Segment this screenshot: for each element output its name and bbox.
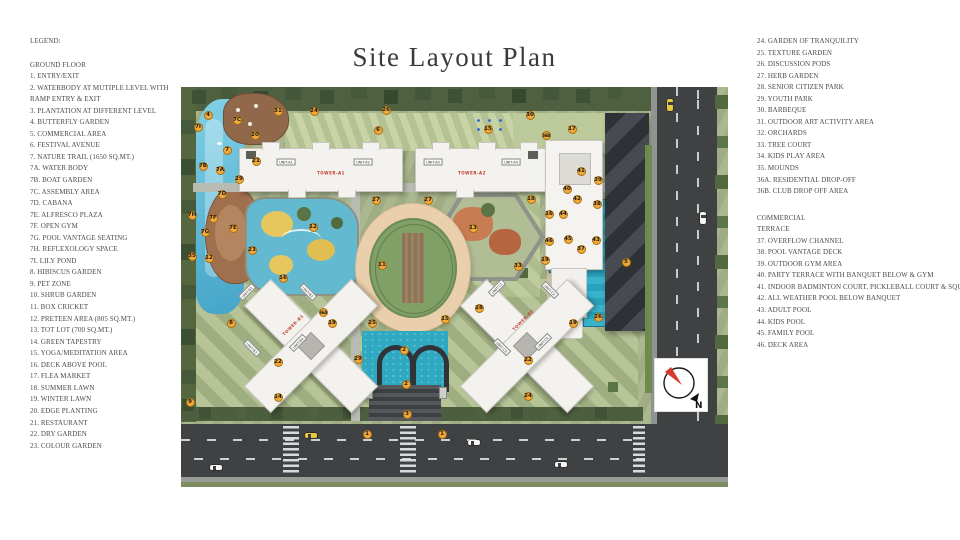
building-wing xyxy=(338,190,356,198)
car xyxy=(305,433,317,438)
legend-item: 27. HERB GARDEN xyxy=(757,71,957,83)
legend-item: 9. PET ZONE xyxy=(30,279,180,291)
legend-item: 5. COMMERCIAL AREA xyxy=(30,129,180,141)
boat-garden-inner xyxy=(215,205,247,261)
legend-item: 7D. CABANA xyxy=(30,198,180,210)
legend-item: 7. NATURE TRAIL (1650 SQ.MT.) xyxy=(30,152,180,164)
legend-item: 29. YOUTH PARK xyxy=(757,94,957,106)
legend-item: 24. GARDEN OF TRANQUILITY xyxy=(757,36,957,48)
plan-marker-7F: 7F xyxy=(209,214,218,223)
legend-right-column: 24. GARDEN OF TRANQUILITY25. TEXTURE GAR… xyxy=(757,36,957,351)
plan-marker-2: 2 xyxy=(400,346,409,355)
legend-item: 43. ADULT POOL xyxy=(757,305,957,317)
legend-item: 17. FLEA MARKET xyxy=(30,371,180,383)
north-label: N xyxy=(695,401,703,411)
car xyxy=(468,440,480,445)
site-layout-page: Site Layout Plan LEGEND: GROUND FLOOR 1.… xyxy=(0,0,960,540)
plan-marker-33: 33 xyxy=(514,262,523,271)
plan-marker-7I: 7I xyxy=(194,123,203,132)
legend-item: 36B. CLUB DROP OFF AREA xyxy=(757,186,957,198)
plan-marker-35: 35 xyxy=(188,252,197,261)
car xyxy=(210,465,222,470)
legend-item: 44. KIDS POOL xyxy=(757,317,957,329)
car xyxy=(667,99,673,111)
plan-marker-18: 18 xyxy=(527,195,536,204)
plan-marker-24: 24 xyxy=(310,107,319,116)
plan-marker-1: 1 xyxy=(438,430,447,439)
north-arrow-graphic: N xyxy=(655,359,707,411)
building-wing xyxy=(362,142,380,150)
legend-item: 28. SENIOR CITIZEN PARK xyxy=(757,82,957,94)
building-wing xyxy=(312,142,330,150)
plan-marker-9: 9 xyxy=(186,398,195,407)
tower-label: TOWER-A1 xyxy=(317,171,345,176)
legend-item: 40. PARTY TERRACE WITH BANQUET BELOW & G… xyxy=(757,270,957,282)
plan-marker-7G: 7G xyxy=(201,228,210,237)
legend-item: 8. HIBISCUS GARDEN xyxy=(30,267,180,279)
legend-item: 32. ORCHARDS xyxy=(757,128,957,140)
building-wing xyxy=(288,190,306,198)
legend-item: 6. FESTIVAL AVENUE xyxy=(30,140,180,152)
legend-item: 22. DRY GARDEN xyxy=(30,429,180,441)
crosswalk xyxy=(283,426,299,475)
plan-marker-7: 7 xyxy=(223,146,232,155)
plan-marker-28: 28 xyxy=(475,304,484,313)
unit-label: UNIT-A4 xyxy=(502,159,521,166)
water-slide-curve xyxy=(281,229,321,249)
plan-marker-22: 22 xyxy=(524,356,533,365)
plan-marker-36A: 36A xyxy=(319,308,328,317)
legend-item: 7E. ALFRESCO PLAZA xyxy=(30,210,180,222)
tree-icon xyxy=(481,203,495,217)
legend-item: 46. DECK AREA xyxy=(757,340,957,352)
plan-marker-30: 30 xyxy=(526,111,535,120)
legend-item: 33. TREE COURT xyxy=(757,140,957,152)
unit-label: UNIT-A2 xyxy=(354,159,373,166)
plan-marker-3: 3 xyxy=(403,410,412,419)
planting-strip-south xyxy=(181,482,728,487)
plan-marker-46: 46 xyxy=(545,237,554,246)
boat-icon xyxy=(217,142,222,145)
legend-item: 7I. LILY POND xyxy=(30,256,180,268)
plan-marker-22: 22 xyxy=(274,358,283,367)
legend-item: 41. INDOOR BADMINTON COURT, PICKLEBALL C… xyxy=(757,282,957,294)
legend-item: 7H. REFLEXOLOGY SPACE xyxy=(30,244,180,256)
building-wing xyxy=(478,142,496,150)
unit-label: UNIT-A3 xyxy=(424,159,443,166)
unit-label: UNIT-A1 xyxy=(277,159,296,166)
plan-marker-7B: 7B xyxy=(199,162,208,171)
legend-item: 37. OVERFLOW CHANNEL xyxy=(757,236,957,248)
legend-item: 26. DISCUSSION PODS xyxy=(757,59,957,71)
plan-marker-7A: 7A xyxy=(216,166,225,175)
green-verge xyxy=(645,145,652,393)
legend-item: 1. ENTRY/EXIT xyxy=(30,71,180,83)
legend-item: 19. WINTER LAWN xyxy=(30,394,180,406)
site-plan-image: N UNIT-A1UNIT-A2UNIT-A3UNIT-A4UNIT-B1UNI… xyxy=(181,87,728,487)
building-wing xyxy=(456,190,474,198)
commercial-building xyxy=(605,113,649,331)
legend-item: 10. SHRUB GARDEN xyxy=(30,290,180,302)
play-equipment xyxy=(489,229,521,255)
roof-detail xyxy=(528,151,538,159)
plan-marker-26: 26 xyxy=(382,106,391,115)
car xyxy=(555,462,567,467)
plan-marker-41: 41 xyxy=(577,167,586,176)
plan-marker-4: 4 xyxy=(204,111,213,120)
plan-marker-17: 17 xyxy=(568,125,577,134)
legend-item: 42. ALL WEATHER POOL BELOW BANQUET xyxy=(757,293,957,305)
plan-marker-45: 45 xyxy=(564,235,573,244)
legend-item: 21. RESTAURANT xyxy=(30,418,180,430)
plan-marker-16: 16 xyxy=(545,210,554,219)
legend-item: 23. COLOUR GARDEN xyxy=(30,441,180,453)
legend-right-items-bottom: 37. OVERFLOW CHANNEL38. POOL VANTAGE DEC… xyxy=(757,236,957,351)
plan-marker-16: 16 xyxy=(279,274,288,283)
plan-marker-20: 20 xyxy=(251,131,260,140)
spacer xyxy=(30,48,180,60)
plan-marker-6: 6 xyxy=(374,126,383,135)
legend-item: 4. BUTTERFLY GARDEN xyxy=(30,117,180,129)
legend-item: 38. POOL VANTAGE DECK xyxy=(757,247,957,259)
legend-item: 39. OUTDOOR GYM AREA xyxy=(757,259,957,271)
gate-post xyxy=(439,387,447,399)
road-south xyxy=(181,424,728,477)
plan-marker-19: 19 xyxy=(569,319,578,328)
legend-right-items-top: 24. GARDEN OF TRANQUILITY25. TEXTURE GAR… xyxy=(757,36,957,198)
plan-marker-24: 24 xyxy=(524,392,533,401)
building-wing xyxy=(432,142,450,150)
plan-marker-26: 26 xyxy=(594,313,603,322)
plan-marker-27: 27 xyxy=(372,196,381,205)
plan-marker-31: 31 xyxy=(274,107,283,116)
plan-marker-21: 21 xyxy=(252,157,261,166)
plan-marker-11: 11 xyxy=(378,261,387,270)
plan-marker-12: 12 xyxy=(205,254,214,263)
plan-marker-7C: 7C xyxy=(233,116,242,125)
legend-heading: LEGEND: xyxy=(30,36,180,48)
plan-marker-15: 15 xyxy=(484,125,493,134)
legend-item: 25. TEXTURE GARDEN xyxy=(757,48,957,60)
legend-left-column: LEGEND: GROUND FLOOR 1. ENTRY/EXIT2. WAT… xyxy=(30,36,180,452)
legend-item: 7G. POOL VANTAGE SEATING xyxy=(30,233,180,245)
plan-marker-27: 27 xyxy=(424,196,433,205)
legend-item: 7A. WATER BODY xyxy=(30,163,180,175)
legend-item: 34. KIDS PLAY AREA xyxy=(757,151,957,163)
legend-section-commercial-terrace: COMMERCIALTERRACE xyxy=(757,213,957,236)
plan-marker-7D: 7D xyxy=(218,190,227,199)
spacer xyxy=(757,198,957,213)
plan-marker-38: 38 xyxy=(593,200,602,209)
legend-section-line: TERRACE xyxy=(757,224,957,236)
crosswalk xyxy=(400,426,416,475)
legend-item: 16. DECK ABOVE POOL xyxy=(30,360,180,372)
legend-item: 3. PLANTATION AT DIFFERENT LEVEL xyxy=(30,106,180,118)
plan-marker-8: 8 xyxy=(227,319,236,328)
plan-marker-36B: 36B xyxy=(542,131,551,140)
legend-section-line: COMMERCIAL xyxy=(757,213,957,225)
plan-marker-39: 39 xyxy=(594,176,603,185)
plan-marker-37: 37 xyxy=(577,245,586,254)
page-title: Site Layout Plan xyxy=(181,42,728,73)
legend-item: 7B. BOAT GARDEN xyxy=(30,175,180,187)
plan-marker-29: 29 xyxy=(235,175,244,184)
building-wing xyxy=(520,142,538,150)
building-wing xyxy=(262,142,280,150)
legend-item: 7F. OPEN GYM xyxy=(30,221,180,233)
legend-left-items: 1. ENTRY/EXIT2. WATERBODY AT MUTIPLE LEV… xyxy=(30,71,180,452)
plan-marker-44: 44 xyxy=(559,210,568,219)
plan-marker-42: 42 xyxy=(573,195,582,204)
legend-section-ground-floor: GROUND FLOOR xyxy=(30,60,180,72)
crosswalk xyxy=(633,426,645,475)
legend-item: 18. SUMMER LAWN xyxy=(30,383,180,395)
legend-item: 30. BARBEQUE xyxy=(757,105,957,117)
legend-item: 13. TOT LOT (700 SQ.MT.) xyxy=(30,325,180,337)
north-arrow: N xyxy=(655,359,707,411)
plan-marker-7H: 7H xyxy=(188,211,197,220)
cricket-pitch xyxy=(402,233,424,303)
tower-label: TOWER-A2 xyxy=(458,171,486,176)
plan-marker-1: 1 xyxy=(363,430,372,439)
legend-item: 36A. RESIDENTIAL DROP-OFF xyxy=(757,175,957,187)
legend-item: 7C. ASSEMBLY AREA xyxy=(30,187,180,199)
legend-item: 20. EDGE PLANTING xyxy=(30,406,180,418)
plan-marker-14: 14 xyxy=(274,393,283,402)
legend-item: 11. BOX CRICKET xyxy=(30,302,180,314)
plan-marker-19: 19 xyxy=(328,319,337,328)
plan-marker-43: 43 xyxy=(592,236,601,245)
plan-marker-40: 40 xyxy=(563,185,572,194)
plan-marker-13: 13 xyxy=(469,224,478,233)
legend-item: RAMP ENTRY & EXIT xyxy=(30,94,180,106)
plan-marker-5: 5 xyxy=(622,258,631,267)
legend-item: 35. MOUNDS xyxy=(757,163,957,175)
plan-marker-2: 2 xyxy=(402,380,411,389)
legend-item: 45. FAMILY POOL xyxy=(757,328,957,340)
tree-icon xyxy=(331,217,343,229)
tree-icon xyxy=(297,207,311,221)
legend-item: 14. GREEN TAPESTRY xyxy=(30,337,180,349)
plan-marker-7E: 7E xyxy=(229,224,238,233)
legend-item: 2. WATERBODY AT MUTIPLE LEVEL WITH xyxy=(30,83,180,95)
plan-marker-29: 29 xyxy=(354,355,363,364)
legend-item: 12. PRETEEN AREA (805 SQ.MT.) xyxy=(30,314,180,326)
plan-marker-15: 15 xyxy=(441,315,450,324)
legend-item: 15. YOGA/MEDITATION AREA xyxy=(30,348,180,360)
legend-item: 31. OUTDOOR ART ACTIVITY AREA xyxy=(757,117,957,129)
plan-marker-12: 12 xyxy=(309,223,318,232)
clubhouse-court xyxy=(559,153,591,185)
car xyxy=(700,212,706,224)
plan-marker-19: 19 xyxy=(541,256,550,265)
plan-marker-25: 25 xyxy=(368,319,377,328)
plan-marker-23: 23 xyxy=(248,246,257,255)
